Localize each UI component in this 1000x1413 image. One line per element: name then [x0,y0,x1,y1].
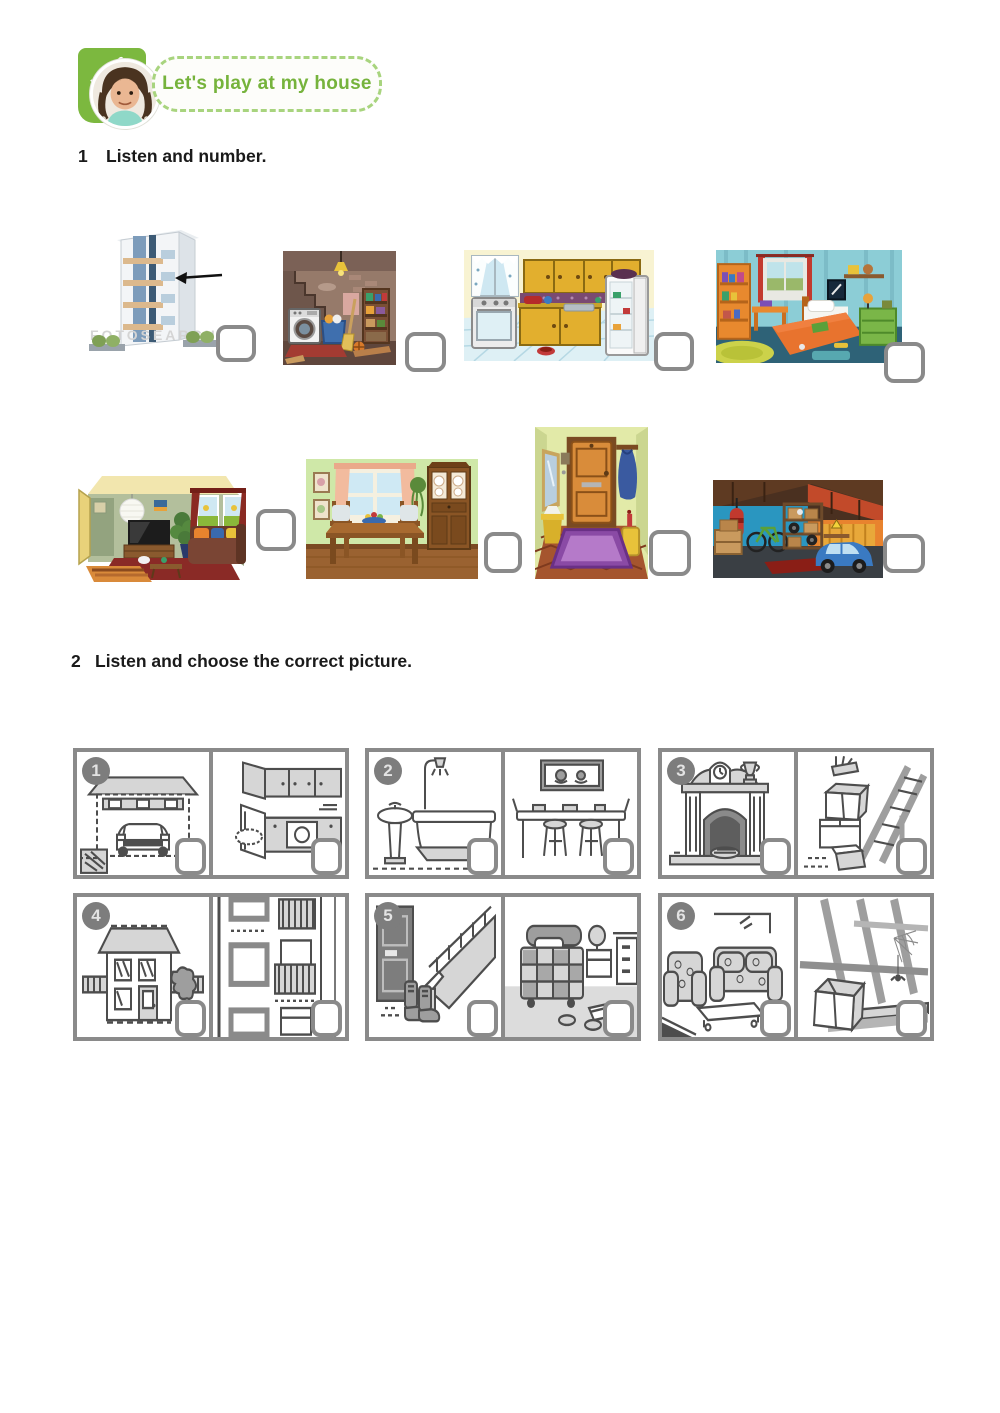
pair-1-left-answer-box[interactable] [175,838,206,875]
pair-6-option-right [798,897,930,1037]
answer-box-dining-room[interactable] [484,532,522,573]
answer-box-kitchen[interactable] [654,332,694,371]
garage-illustration [713,480,883,578]
basement-image [283,251,396,365]
exercise1-instruction: Listen and number. [106,146,266,167]
answer-box-basement[interactable] [405,332,446,372]
garage-image [713,480,883,578]
pair-1-right-answer-box[interactable] [311,838,342,875]
pair-4-right-answer-box[interactable] [311,1000,342,1037]
pair-5-left-answer-box[interactable] [467,1000,498,1037]
answer-box-apartment[interactable] [216,325,256,362]
living-room-illustration [78,470,246,584]
pair-1-number-badge: 1 [82,757,110,785]
girl-photo [93,62,157,126]
kitchen-illustration [464,250,654,361]
answer-box-bedroom[interactable] [884,342,925,383]
answer-box-hallway[interactable] [649,530,691,576]
exercise2-pair-4: 4 [73,893,349,1041]
pair-4-left-answer-box[interactable] [175,1000,206,1037]
pair-3-right-answer-box[interactable] [896,838,927,875]
exercise2-pair-6: 6 [658,893,934,1041]
title-banner: Let's play at my house [152,56,382,112]
exercise1-heading: 1 Listen and number. [78,146,266,167]
living-room-image [78,470,246,584]
kitchen-image [464,250,654,361]
dining-room-image [306,459,478,579]
exercise2-number: 2 [71,651,95,672]
pair-6-right-answer-box[interactable] [896,1000,927,1037]
basement-illustration [283,251,396,365]
pair-6-number-badge: 6 [667,902,695,930]
exercise2-pair-5: 5 [365,893,641,1041]
exercise2-heading: 2 Listen and choose the correct picture. [71,651,412,672]
pair-1-option-right [213,752,345,875]
pair-3-left-answer-box[interactable] [760,838,791,875]
dining-room-illustration [306,459,478,579]
hallway-illustration [535,427,648,579]
bedroom-image [716,250,902,363]
apartment-building-image: FOTOSEARCH [85,220,223,358]
exercise2-pair-2: 2 [365,748,641,879]
bedroom-illustration [716,250,902,363]
pair-5-right-answer-box[interactable] [603,1000,634,1037]
apartment-building-illustration: FOTOSEARCH [85,220,223,358]
page-title: Let's play at my house [162,73,372,95]
hallway-image [535,427,648,579]
exercise2-pair-3: 3 [658,748,934,879]
exercise2-pair-1: 1 [73,748,349,879]
exercise2-instruction: Listen and choose the correct picture. [95,651,412,672]
avatar [90,59,160,129]
pair-2-number-badge: 2 [374,757,402,785]
pair-3-number-badge: 3 [667,757,695,785]
exercise1-number: 1 [78,146,106,167]
pair-3-option-right [798,752,930,875]
answer-box-garage[interactable] [883,534,925,573]
pair-4-number-badge: 4 [82,902,110,930]
pair-5-number-badge: 5 [374,902,402,930]
answer-box-living-room[interactable] [256,509,296,551]
pair-4-option-right [213,897,345,1037]
pair-2-right-answer-box[interactable] [603,838,634,875]
pair-5-option-right [505,897,637,1037]
pair-6-left-answer-box[interactable] [760,1000,791,1037]
pair-2-option-right [505,752,637,875]
pair-2-left-answer-box[interactable] [467,838,498,875]
worksheet-page: Unit 2 Let's play at my house 1 Listen a… [0,0,1000,1413]
